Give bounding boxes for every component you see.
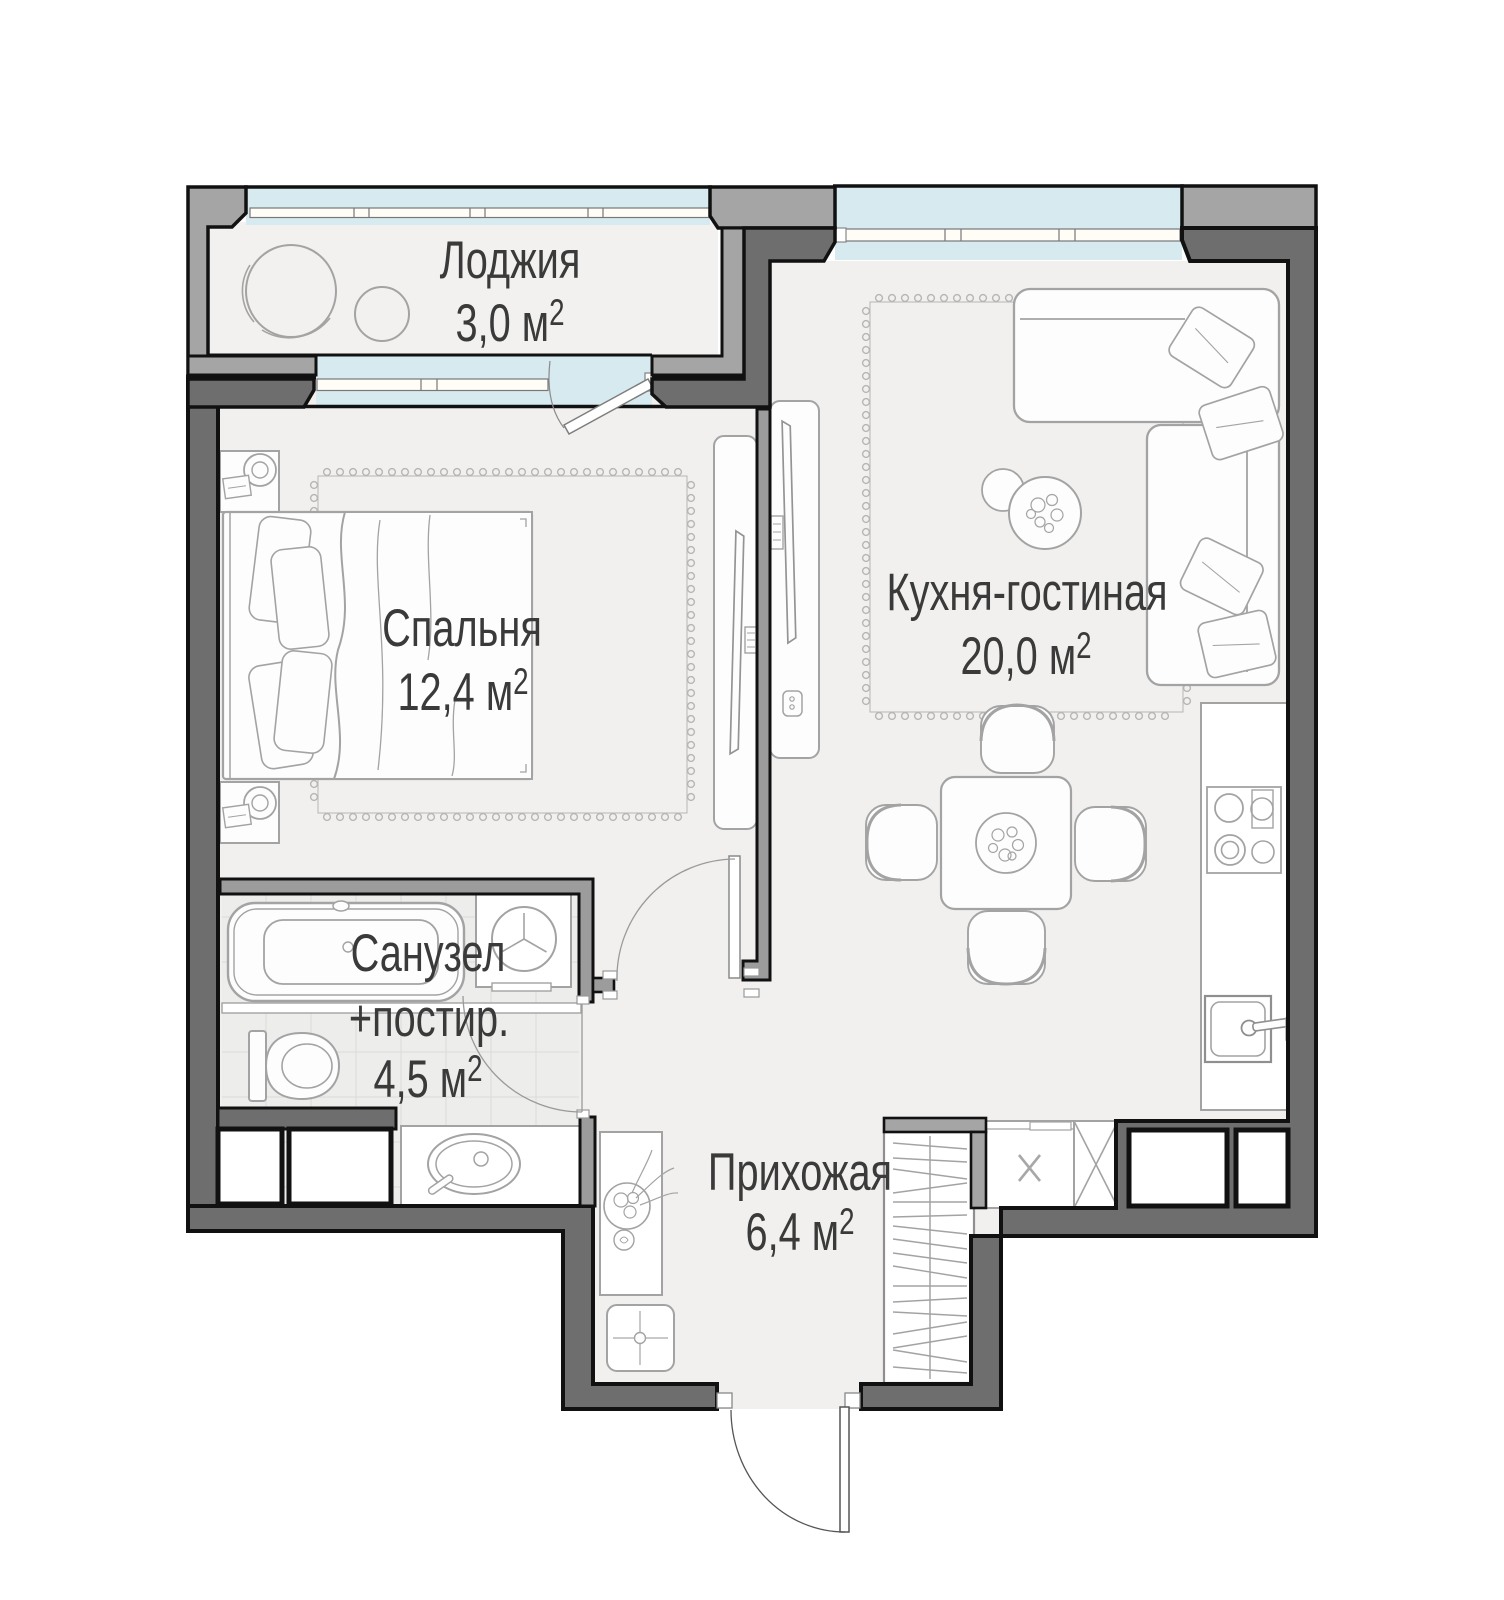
svg-text:4,5 м2: 4,5 м2: [373, 1047, 482, 1108]
svg-text:12,4 м2: 12,4 м2: [397, 660, 528, 721]
svg-text:20,0 м2: 20,0 м2: [960, 624, 1091, 685]
svg-text:Лоджия: Лоджия: [440, 230, 581, 289]
svg-text:Прихожая: Прихожая: [708, 1142, 892, 1201]
svg-text:6,4 м2: 6,4 м2: [745, 1200, 854, 1261]
svg-text:Санузел: Санузел: [351, 923, 506, 982]
svg-text:+постир.: +постир.: [349, 988, 509, 1047]
svg-text:Кухня-гостиная: Кухня-гостиная: [886, 562, 1167, 621]
svg-text:3,0 м2: 3,0 м2: [455, 291, 564, 352]
svg-text:Спальня: Спальня: [382, 598, 542, 657]
